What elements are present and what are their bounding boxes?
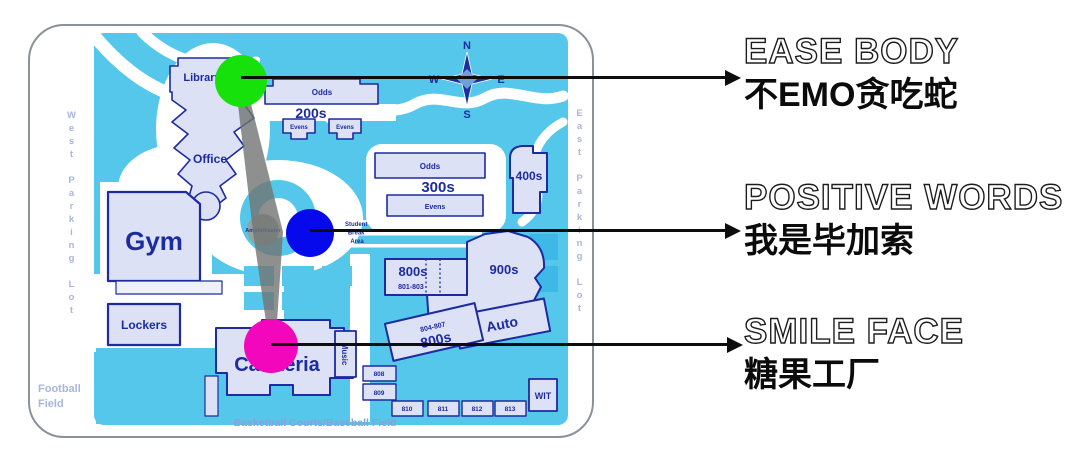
annotation-2-subtitle: 我是毕加索	[744, 223, 1063, 260]
building-gym-base	[116, 281, 222, 294]
arrow-head-2	[725, 223, 741, 239]
900s-label: 900s	[490, 262, 519, 277]
annotation-3-subtitle: 糖果工厂	[744, 357, 964, 394]
compass-s: S	[463, 109, 470, 121]
evens-200a-label: Evens	[290, 125, 308, 131]
annotation-1-title: EASE BODY	[744, 34, 959, 71]
annotation-1-subtitle: 不EMO贪吃蛇	[744, 77, 959, 114]
odds-200-label: Odds	[312, 88, 333, 97]
odds-300-label: Odds	[420, 162, 441, 171]
football-field-label: Football Field	[38, 382, 102, 412]
200s-label: 200s	[295, 105, 326, 121]
basketball-baseball-label: Basketball Courts/Baseball Field	[170, 417, 460, 429]
music-label: Music	[340, 343, 349, 366]
808-label: 808	[374, 371, 385, 378]
arrow-line-3	[271, 343, 727, 346]
building-cafeteria-annex	[205, 376, 218, 416]
811-label: 811	[438, 406, 449, 413]
office-label: Office	[193, 152, 227, 166]
809-label: 809	[374, 390, 385, 397]
evens-300-label: Evens	[425, 204, 446, 211]
300s-label: 300s	[421, 179, 454, 196]
arrow-line-2	[310, 229, 725, 232]
annotation-2-title: POSITIVE WORDS	[744, 180, 1063, 217]
gym-label: Gym	[125, 226, 183, 256]
annotation-3-title: SMILE FACE	[744, 314, 964, 351]
annotation-ease-body: EASE BODY 不EMO贪吃蛇	[744, 34, 959, 114]
arrow-head-1	[725, 70, 741, 86]
lockers-label: Lockers	[121, 318, 167, 332]
annotation-positive-words: POSITIVE WORDS 我是毕加索	[744, 180, 1063, 260]
infographic: Library Office Gym Lockers Cafeteria Mus…	[0, 0, 1065, 460]
arrow-head-3	[727, 337, 743, 353]
400s-label: 400s	[516, 169, 543, 183]
green-marker	[215, 55, 267, 107]
evens-200b-label: Evens	[336, 125, 354, 131]
812-label: 812	[472, 406, 483, 413]
810-label: 810	[402, 406, 413, 413]
arrow-line-1	[241, 76, 725, 79]
813-label: 813	[505, 406, 516, 413]
magenta-marker	[244, 319, 298, 373]
east-parking-lot-label: East Parking Lot	[574, 108, 585, 316]
annotation-smile-face: SMILE FACE 糖果工厂	[744, 314, 964, 394]
wit-label: WIT	[535, 391, 552, 401]
801-803-label: 801-803	[398, 284, 424, 291]
compass-n: N	[463, 40, 471, 52]
800s-label: 800s	[399, 264, 428, 279]
west-parking-lot-label: West Parking Lot	[66, 110, 77, 318]
blue-marker	[286, 209, 334, 257]
